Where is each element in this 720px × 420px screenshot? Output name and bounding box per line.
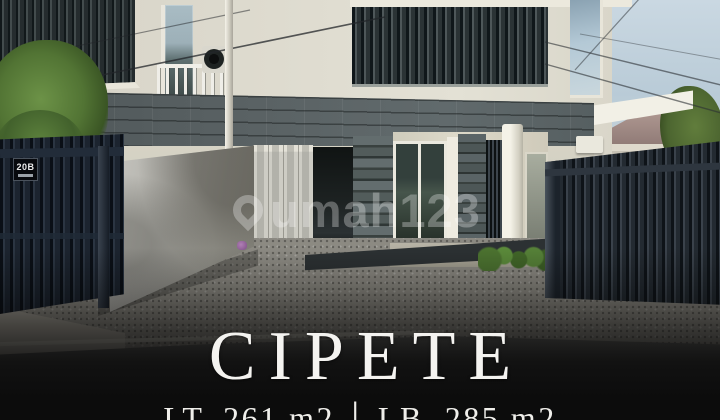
- house-sign-bar: [18, 174, 33, 177]
- land-area: LT. 261 m2: [163, 400, 335, 420]
- rumah123-watermark: umah123: [233, 181, 553, 239]
- ac-unit: [202, 46, 226, 73]
- listing-title: CIPETE: [0, 322, 720, 392]
- house-number: 20B: [16, 163, 34, 172]
- building-area: LB. 285 m2: [378, 400, 557, 420]
- listing-specs: LT. 261 m2|LB. 285 m2: [0, 393, 720, 420]
- location-pin-icon: [227, 189, 269, 231]
- listing-photo: 20B umah123 CIPETE LT. 261 m2|LB. 285 m2: [0, 0, 720, 420]
- specs-separator: |: [351, 395, 362, 420]
- louver-balcony-right: [352, 5, 548, 87]
- corner-window: [570, 0, 603, 98]
- watermark-text: umah123: [270, 187, 481, 234]
- house-number-sign: 20B: [13, 158, 38, 181]
- ac-unit-small: [576, 136, 603, 153]
